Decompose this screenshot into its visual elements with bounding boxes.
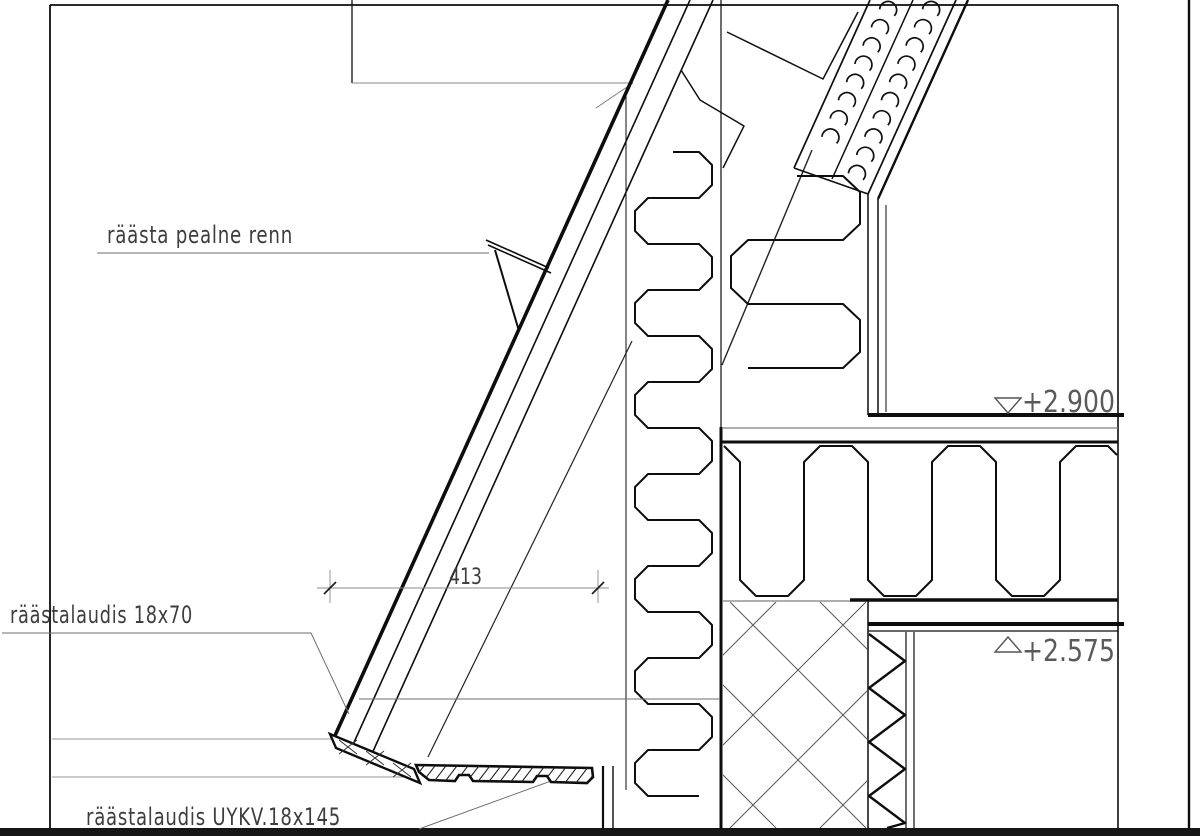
label-fascia-small: räästalaudis 18x70 <box>10 601 193 629</box>
label-gutter: räästa pealne renn <box>107 221 293 249</box>
label-fascia-profiled: räästalaudis UYKV.18x145 <box>86 803 341 831</box>
eave-detail-svg: 413 +2.900 +2.575 räästa pealne renn rää… <box>0 0 1200 836</box>
dimension-413: 413 <box>449 565 482 590</box>
level-value-lower: +2.575 <box>1022 634 1115 669</box>
level-value-upper: +2.900 <box>1022 385 1115 420</box>
cad-detail-drawing: 413 +2.900 +2.575 räästa pealne renn rää… <box>0 0 1200 836</box>
paper-background <box>0 0 1200 836</box>
